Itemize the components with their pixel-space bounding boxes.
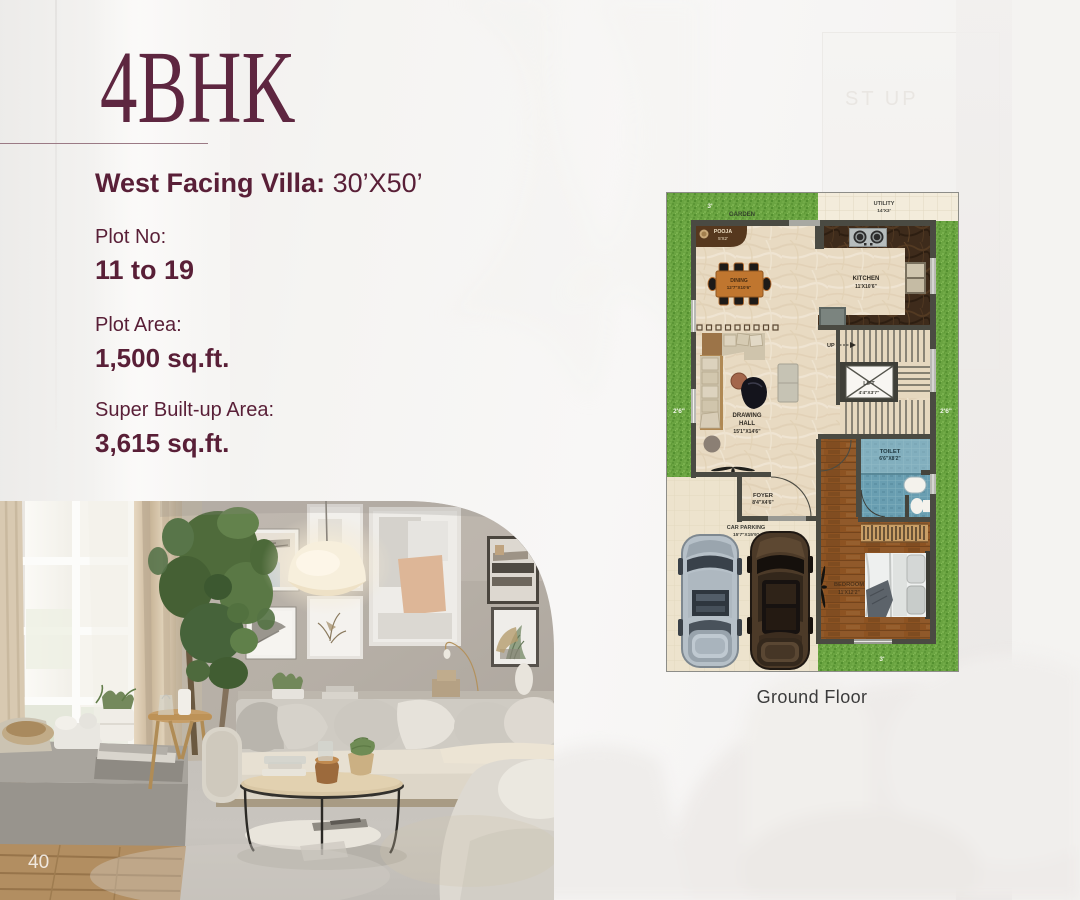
svg-text:FOYER: FOYER	[753, 493, 774, 499]
svg-text:3': 3'	[707, 203, 713, 210]
svg-text:14'X3': 14'X3'	[877, 208, 890, 214]
svg-text:POOJA: POOJA	[714, 229, 732, 235]
svg-text:6'6"X8'2": 6'6"X8'2"	[879, 456, 901, 462]
svg-text:UP: UP	[827, 343, 835, 349]
svg-text:5'X2': 5'X2'	[718, 236, 728, 241]
svg-text:DRAWING: DRAWING	[733, 413, 762, 419]
svg-text:TOILET: TOILET	[880, 449, 901, 455]
svg-text:11'X12'2": 11'X12'2"	[838, 590, 860, 596]
svg-text:UTILITY: UTILITY	[874, 201, 895, 207]
svg-text:GARDEN: GARDEN	[729, 212, 755, 218]
svg-text:2'6": 2'6"	[673, 408, 685, 415]
svg-text:KITCHEN: KITCHEN	[853, 276, 880, 282]
svg-text:4'4"X3'7": 4'4"X3'7"	[859, 390, 880, 396]
svg-text:12'7"X10'6": 12'7"X10'6"	[727, 285, 751, 290]
svg-text:15'7"X15'9": 15'7"X15'9"	[733, 532, 759, 538]
svg-text:2'6": 2'6"	[940, 408, 952, 415]
svg-text:BEDROOM: BEDROOM	[834, 582, 864, 588]
svg-text:CAR PARKING: CAR PARKING	[727, 525, 765, 531]
svg-text:HALL: HALL	[739, 421, 755, 427]
svg-text:8'4"X4'6": 8'4"X4'6"	[752, 500, 774, 506]
svg-text:LIFT: LIFT	[863, 381, 875, 387]
svg-text:15'1"X14'6": 15'1"X14'6"	[733, 429, 761, 435]
svg-text:3': 3'	[879, 656, 885, 663]
svg-text:11'X10'6": 11'X10'6"	[855, 284, 877, 290]
svg-text:DINING: DINING	[730, 278, 748, 284]
